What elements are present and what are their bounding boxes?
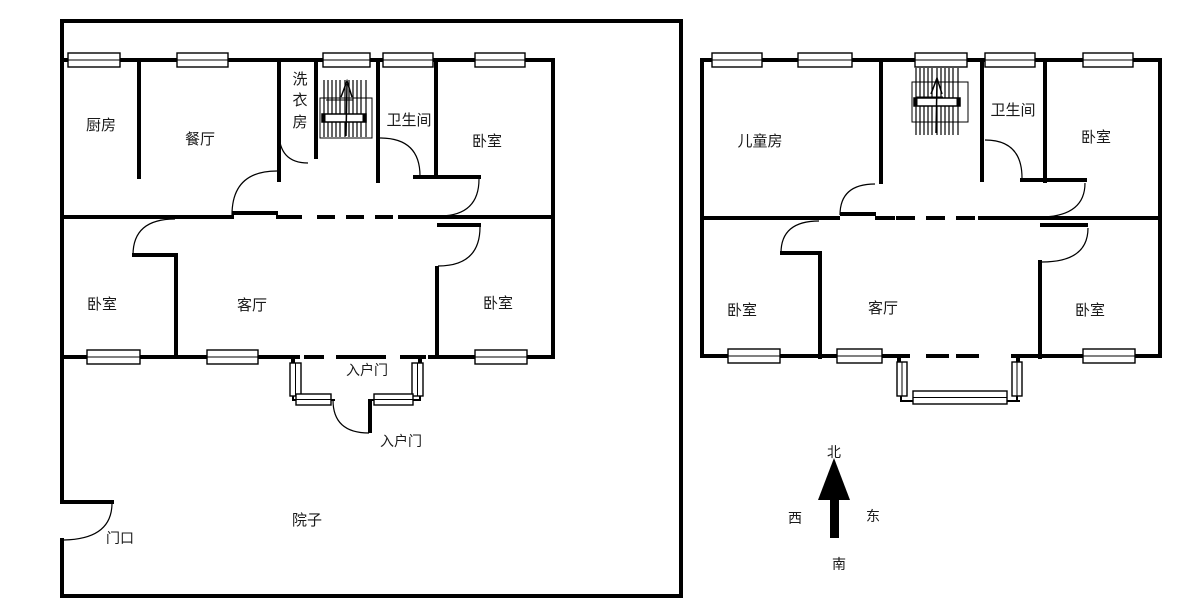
compass-label-west: 西 — [788, 511, 802, 527]
compass-north-arrow — [818, 458, 850, 500]
door-arc-children — [840, 184, 875, 215]
room-label-bedroom-left-left-plan: 卧室 — [87, 295, 117, 313]
door-arc-bedroom-bottomright-left — [438, 227, 480, 266]
door-arc-bedroom-topright-left — [441, 179, 479, 216]
room-label-laundry-char-3: 房 — [292, 113, 307, 131]
room-label-bathroom-right: 卫生间 — [990, 101, 1035, 119]
room-label-bedroom-right-right-plan: 卧室 — [1075, 301, 1105, 319]
compass-label-east: 东 — [866, 509, 880, 525]
right-floor-plan: 儿童房 卫生间 卧室 卧室 客厅 卧室 — [702, 53, 1160, 404]
compass-label-north: 北 — [827, 445, 841, 461]
compass-arrow-shaft — [830, 496, 839, 538]
compass-label-south: 南 — [832, 557, 846, 573]
label-entrance-door-bottom: 入户门 — [380, 433, 422, 450]
room-label-living-right-plan: 客厅 — [868, 299, 898, 317]
room-label-bedroom-top-left-plan: 卧室 — [472, 132, 502, 150]
door-arc-laundry — [279, 132, 308, 163]
floor-plan-drawing: 厨房 餐厅 洗 衣 房 卫生间 卧室 卧室 客厅 卧室 入户门 入户门 院子 门… — [0, 0, 1177, 605]
label-entrance-door-top: 入户门 — [346, 362, 388, 379]
room-label-bedroom-right-left-plan: 卧室 — [483, 294, 513, 312]
door-arc-bedroom-bottomleft-left — [133, 219, 175, 255]
stairs-right-plan — [912, 68, 968, 135]
left-floor-plan: 厨房 餐厅 洗 衣 房 卫生间 卧室 卧室 客厅 卧室 入户门 入户门 院子 门… — [62, 21, 681, 596]
door-arc-bedroom-topright-right — [1044, 183, 1085, 217]
compass: 北 西 东 南 — [788, 445, 880, 573]
room-label-laundry-char-2: 衣 — [292, 91, 307, 109]
floorplan-page: 厨房 餐厅 洗 衣 房 卫生间 卧室 卧室 客厅 卧室 入户门 入户门 院子 门… — [0, 0, 1177, 605]
door-arc-dining — [232, 171, 277, 215]
room-label-dining: 餐厅 — [185, 130, 215, 148]
room-label-laundry-char-1: 洗 — [292, 70, 307, 88]
room-label-bedroom-left-right-plan: 卧室 — [727, 301, 757, 319]
door-arc-entrance — [333, 400, 369, 433]
room-label-bathroom-left: 卫生间 — [386, 111, 431, 129]
stairs-left-plan — [320, 80, 372, 138]
room-label-kitchen: 厨房 — [86, 116, 116, 134]
door-arc-bedroom-bottomright-right — [1042, 228, 1088, 262]
room-label-bedroom-top-right-plan: 卧室 — [1081, 128, 1111, 146]
door-arc-gate — [64, 503, 112, 540]
door-arc-bedroom-bottomleft-right — [781, 221, 819, 253]
label-gate: 门口 — [106, 531, 134, 547]
label-courtyard: 院子 — [292, 511, 322, 529]
door-arc-bathroom-right — [985, 140, 1022, 178]
room-label-living-left-plan: 客厅 — [237, 296, 267, 314]
room-label-children: 儿童房 — [737, 132, 782, 150]
door-arc-bathroom-left — [380, 138, 420, 176]
